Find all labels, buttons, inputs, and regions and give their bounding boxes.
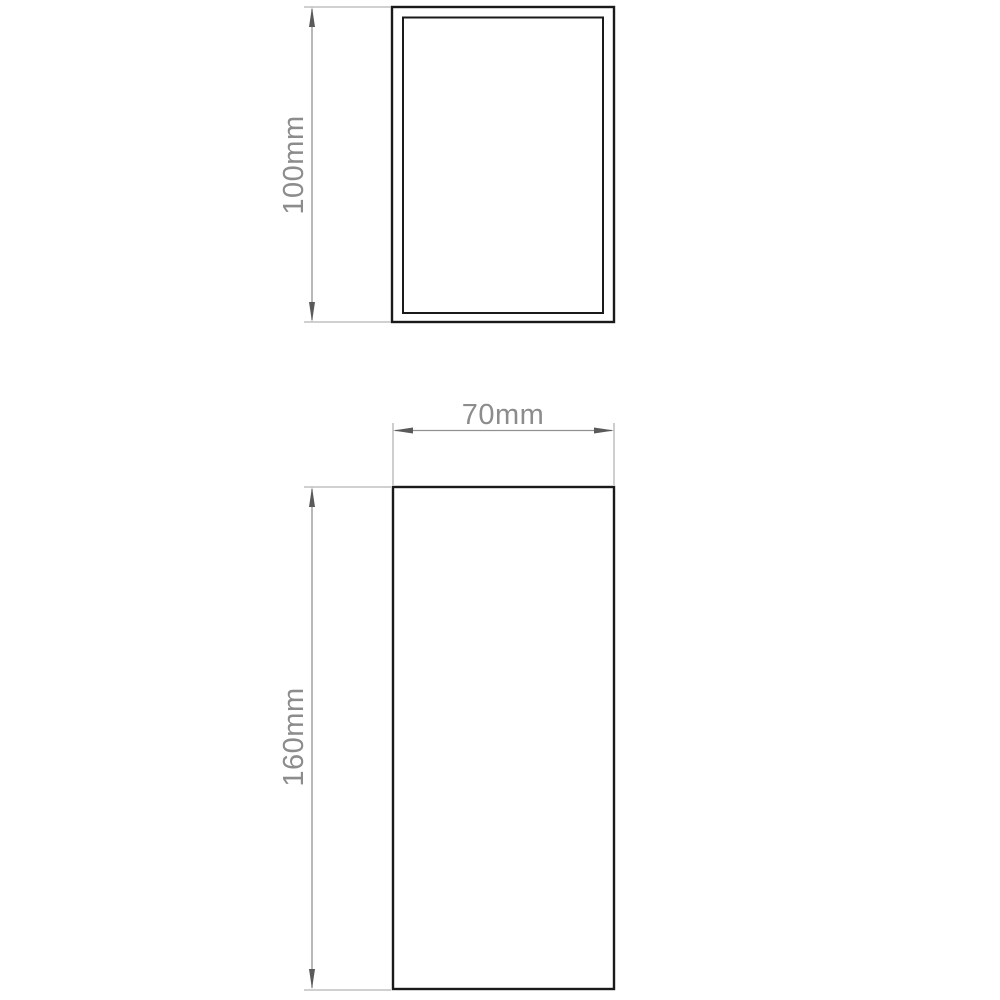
front-view [393,487,614,989]
arrowhead-down-icon [309,969,315,989]
arrowhead-up-icon [309,487,315,507]
arrowhead-left-icon [393,428,413,434]
front-view-outline [393,487,614,989]
top-view [392,7,614,322]
top-view-outer-outline [392,7,614,322]
dimension-label-160mm: 160mm [278,687,310,786]
dimension-drawing: 100mm 70mm 160mm [0,0,1000,1000]
arrowhead-down-icon [309,302,315,322]
dimension-front-view-height: 160mm [278,487,391,990]
arrowhead-right-icon [594,428,614,434]
drawing-canvas: 100mm 70mm 160mm [0,0,1000,1000]
arrowhead-up-icon [309,7,315,27]
dimension-front-view-width: 70mm [393,399,614,485]
dimension-top-view-height: 100mm [278,7,391,322]
dimension-label-100mm: 100mm [278,115,310,214]
dimension-label-70mm: 70mm [462,399,545,431]
